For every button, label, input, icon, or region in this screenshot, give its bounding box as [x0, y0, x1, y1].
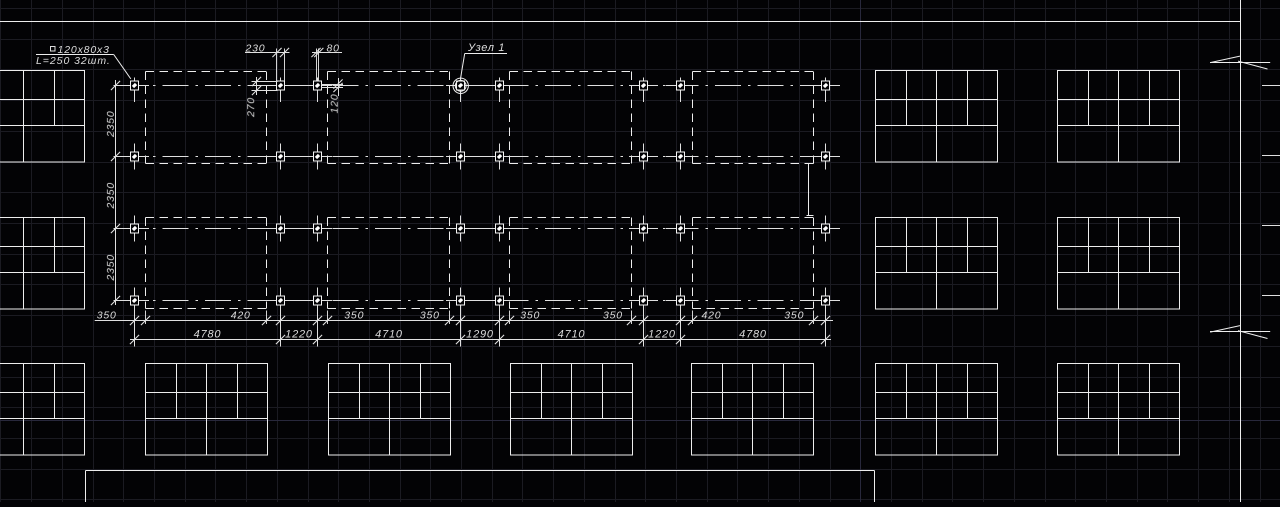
- svg-text:230: 230: [245, 42, 266, 54]
- svg-text:4780: 4780: [739, 328, 767, 340]
- svg-text:4710: 4710: [558, 328, 586, 340]
- svg-text:350: 350: [97, 310, 117, 322]
- svg-text:420: 420: [231, 310, 251, 322]
- svg-text:350: 350: [520, 310, 540, 322]
- svg-text:Узел 1: Узел 1: [467, 42, 505, 54]
- svg-text:120: 120: [329, 94, 341, 114]
- svg-text:350: 350: [603, 310, 623, 322]
- svg-text:4780: 4780: [194, 328, 222, 340]
- svg-text:1290: 1290: [466, 328, 494, 340]
- svg-text:120x80x3: 120x80x3: [58, 44, 110, 56]
- svg-text:2350: 2350: [105, 110, 117, 138]
- svg-text:350: 350: [420, 310, 440, 322]
- svg-text:2350: 2350: [105, 182, 117, 210]
- svg-text:2350: 2350: [105, 254, 117, 282]
- svg-text:350: 350: [344, 310, 364, 322]
- svg-text:1220: 1220: [648, 328, 676, 340]
- svg-text:1220: 1220: [285, 328, 313, 340]
- svg-text:L=250 32шт.: L=250 32шт.: [36, 55, 111, 67]
- svg-text:350: 350: [784, 310, 804, 322]
- svg-text:420: 420: [702, 310, 722, 322]
- svg-text:270: 270: [245, 97, 257, 118]
- svg-text:4710: 4710: [375, 328, 403, 340]
- svg-text:80: 80: [327, 42, 340, 54]
